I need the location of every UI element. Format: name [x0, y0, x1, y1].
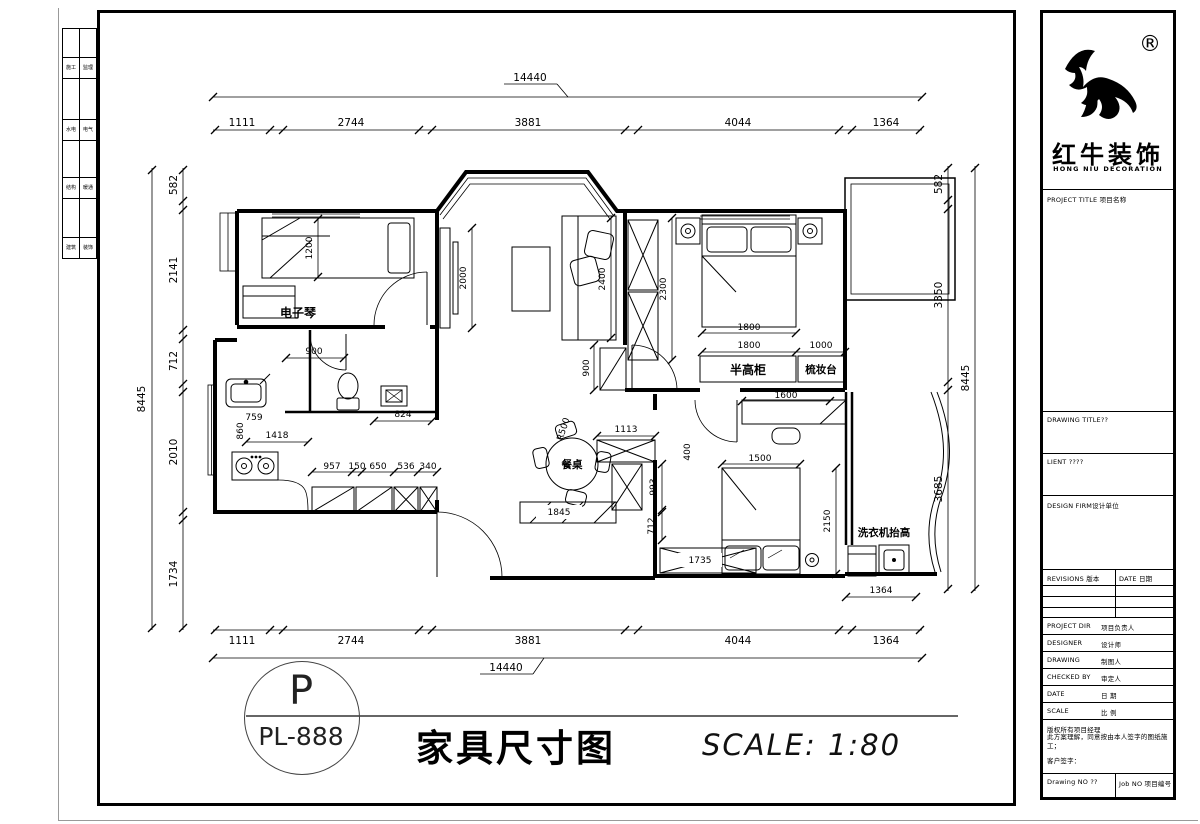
dim-label: 2744 — [338, 635, 365, 647]
row-drawing-cn: 制图人 — [1101, 656, 1121, 666]
room-label-dining: 餐桌 — [561, 458, 583, 471]
floor-plan: 1111 2744 3881 4044 1364 14440 1111 2744… — [0, 0, 1200, 824]
room-label-dresser: 梳妆台 — [804, 363, 837, 376]
dim-label: 993 — [649, 478, 659, 495]
row-date-en: DATE — [1047, 690, 1065, 698]
dim-label: 2300 — [659, 277, 669, 300]
dim-label: 1111 — [229, 635, 256, 647]
dim-label: 14440 — [513, 72, 546, 84]
drawing-scale: SCALE: 1:80 — [702, 728, 901, 762]
dim-label: 3350 — [933, 282, 945, 309]
dim-label: 650 — [369, 462, 386, 472]
dim-label: 1364 — [870, 586, 893, 596]
dim-label: 4044 — [725, 635, 752, 647]
design-firm-label: DESIGN FIRM设计单位 — [1047, 500, 1119, 510]
dim-label: 1845 — [548, 508, 571, 518]
dim-label: 860 — [236, 422, 246, 439]
dim-label: 712 — [647, 517, 657, 534]
drawing-no-label: Drawing NO ?? — [1047, 778, 1098, 786]
dim-label: 1800 — [738, 323, 761, 333]
drawing-title: 家具尺寸图 — [416, 718, 616, 772]
dim-label: 340 — [419, 462, 436, 472]
dim-label: 1600 — [775, 391, 798, 401]
dim-label: 900 — [305, 347, 322, 357]
dim-label: 8445 — [960, 365, 972, 392]
client-label: LIENT ???? — [1047, 458, 1083, 466]
dim-label: 536 — [397, 462, 414, 472]
registered-mark: ® — [1139, 32, 1161, 57]
dim-label: 2010 — [168, 439, 180, 466]
dim-label: 1200 — [305, 236, 315, 259]
dim-label: 2150 — [823, 509, 833, 532]
washer-furniture — [848, 545, 909, 576]
dim-label: 1734 — [168, 560, 180, 587]
dim-label: 582 — [168, 175, 180, 195]
logo-name-en: HONG NIU DECORATION — [1043, 165, 1173, 173]
row-drawing-en: DRAWING — [1047, 656, 1080, 664]
date-col-label: DATE 日期 — [1119, 573, 1152, 583]
dim-label: 957 — [323, 462, 340, 472]
dim-label: 4044 — [725, 117, 752, 129]
dim-label: 1000 — [810, 341, 833, 351]
copyright-line2: 此方案理解，同意按由本人签字的图纸施工； — [1047, 733, 1171, 751]
row-designer-en: DESIGNER — [1047, 639, 1082, 647]
kitchen-bath-furniture — [226, 373, 437, 512]
row-designer-cn: 设计师 — [1101, 639, 1121, 649]
row-checked-en: CHECKED BY — [1047, 673, 1091, 681]
dim-label: 2000 — [459, 266, 469, 289]
dim-label: 900 — [582, 359, 592, 376]
row-date-cn: 日 期 — [1101, 690, 1117, 700]
room-label-washer: 洗衣机抬高 — [858, 526, 911, 539]
row-scale-cn: 比 例 — [1101, 707, 1117, 717]
dim-label: 2744 — [338, 117, 365, 129]
room-label-piano: 电子琴 — [280, 305, 317, 320]
title-block: ® 红牛装饰 HONG NIU DECORATION PROJECT TITLE… — [1040, 10, 1176, 800]
room-label-half-cabinet: 半高柜 — [730, 362, 766, 377]
dim-label: 8445 — [136, 386, 148, 413]
project-title-label: PROJECT TITLE 项目名称 — [1047, 194, 1126, 204]
dim-label: 1364 — [873, 635, 900, 647]
dim-label: 14440 — [489, 662, 522, 674]
revisions-label: REVISIONS 版本 — [1047, 573, 1100, 583]
sheet-letter: P — [244, 668, 358, 714]
dim-label: 759 — [245, 413, 262, 423]
dim-label: 3685 — [933, 476, 945, 503]
bedroom1-furniture — [243, 218, 414, 318]
dim-label: 1800 — [738, 341, 761, 351]
dim-label: 2400 — [598, 267, 608, 290]
dim-label: 712 — [168, 351, 180, 371]
dim-label: 1364 — [873, 117, 900, 129]
dim-label: 1418 — [266, 431, 289, 441]
row-project-dir-en: PROJECT DIR — [1047, 622, 1091, 630]
dim-label: 1111 — [229, 117, 256, 129]
drawing-sheet: 施工 监理 水电 电气 结构 暖通 建筑 装饰 — [0, 0, 1200, 824]
signature-label: 客户签字： — [1047, 755, 1081, 765]
dim-label: 3881 — [515, 635, 542, 647]
bedroom2-furniture — [660, 400, 846, 574]
hongniu-logo: ® — [1043, 21, 1173, 131]
cabinet-labels: 1845 1735 — [536, 505, 722, 567]
dim-label: 824 — [394, 410, 411, 420]
sheet-code: PL-888 — [244, 722, 358, 751]
dim-label: 400 — [683, 443, 693, 460]
dim-label: 2141 — [168, 257, 180, 284]
job-no-label: Job NO 项目编号 — [1119, 778, 1171, 788]
doors — [310, 272, 737, 577]
dim-label: 1735 — [689, 556, 712, 566]
dim-label: 150 — [348, 462, 365, 472]
dim-label: 3881 — [515, 117, 542, 129]
drawing-title-label: DRAWING TITLE?? — [1047, 416, 1108, 424]
dim-label: 1500 — [749, 454, 772, 464]
row-project-dir-cn: 项目负责人 — [1101, 622, 1135, 632]
row-checked-cn: 审定人 — [1101, 673, 1121, 683]
dim-label: 582 — [933, 174, 945, 194]
dim-label: 1113 — [615, 425, 638, 435]
row-scale-en: SCALE — [1047, 707, 1069, 715]
